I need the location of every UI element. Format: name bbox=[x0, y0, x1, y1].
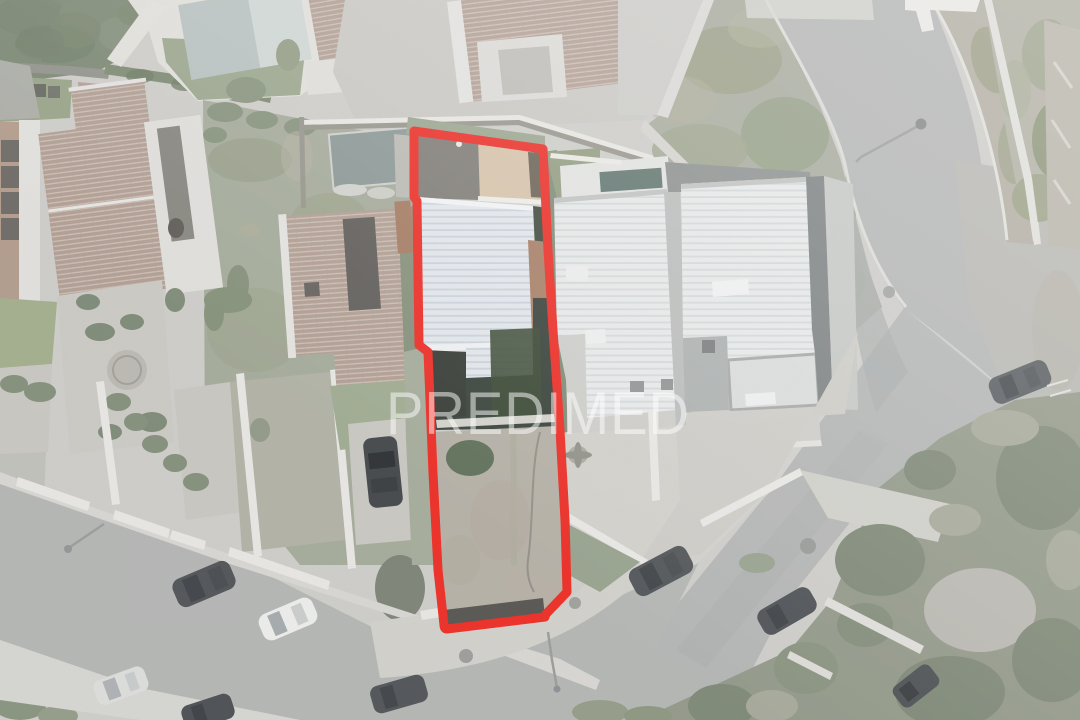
svg-text:PREDIMED: PREDIMED bbox=[386, 380, 690, 447]
